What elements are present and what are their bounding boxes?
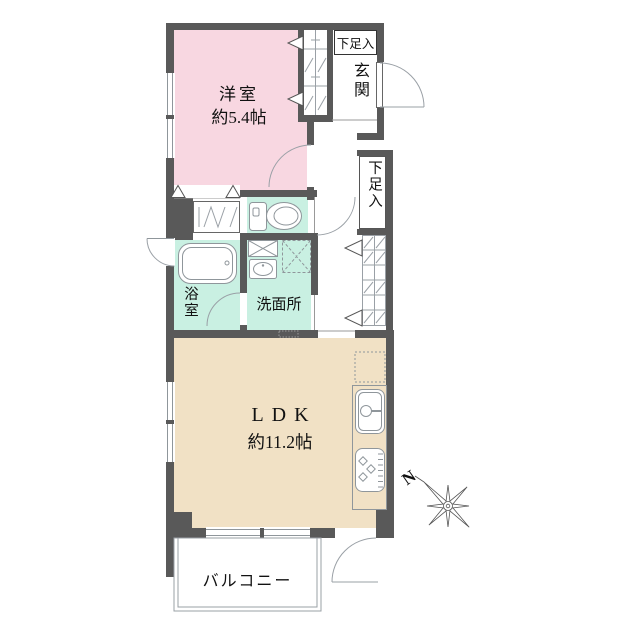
room-label-western: 洋室 xyxy=(174,80,304,105)
room-label-ldk: LDK xyxy=(174,404,386,427)
toilet-icon xyxy=(250,203,302,231)
stove-icon xyxy=(356,449,385,492)
room-label-bathroom: 浴室 xyxy=(180,286,201,319)
room-label-washroom: 洗面所 xyxy=(247,293,311,314)
closet-hatch xyxy=(345,235,386,326)
door-arc-western-room xyxy=(269,145,311,187)
ldk-sill-dotted xyxy=(279,331,298,337)
washer-space-dashed xyxy=(283,241,311,273)
shoe-cabinet-side-label: 下足入 xyxy=(364,160,385,210)
room-label-balcony: バルコニー xyxy=(174,567,321,591)
window xyxy=(206,527,310,539)
refrigerator-space-dotted xyxy=(355,352,385,382)
door-arc-toilet xyxy=(317,197,355,235)
room-size-ldk: 約11.2帖 xyxy=(174,429,386,454)
shoe-cabinet-top-box: 下足入 xyxy=(334,30,377,55)
floor-plan: 洋室 約5.4帖 下足入 玄関 下足入 浴室 洗面所 LDK 約11.2帖 バル… xyxy=(0,0,640,640)
bathroom-window-arc xyxy=(147,238,175,266)
room-label-entrance: 玄関 xyxy=(347,62,371,100)
shoe-cabinet-top-label: 下足入 xyxy=(337,33,375,52)
closet-hatch xyxy=(171,185,240,233)
door-arc-bathroom xyxy=(207,293,240,326)
vanity-sink-icon xyxy=(250,260,277,279)
entrance-door-arc xyxy=(377,63,425,108)
compass-rose xyxy=(415,476,469,527)
room-size-western: 約5.4帖 xyxy=(174,103,304,128)
plan-graphics xyxy=(0,0,640,640)
door-arc-balcony xyxy=(332,538,378,582)
bathtub-icon xyxy=(179,244,237,284)
washer-pan xyxy=(249,241,278,257)
